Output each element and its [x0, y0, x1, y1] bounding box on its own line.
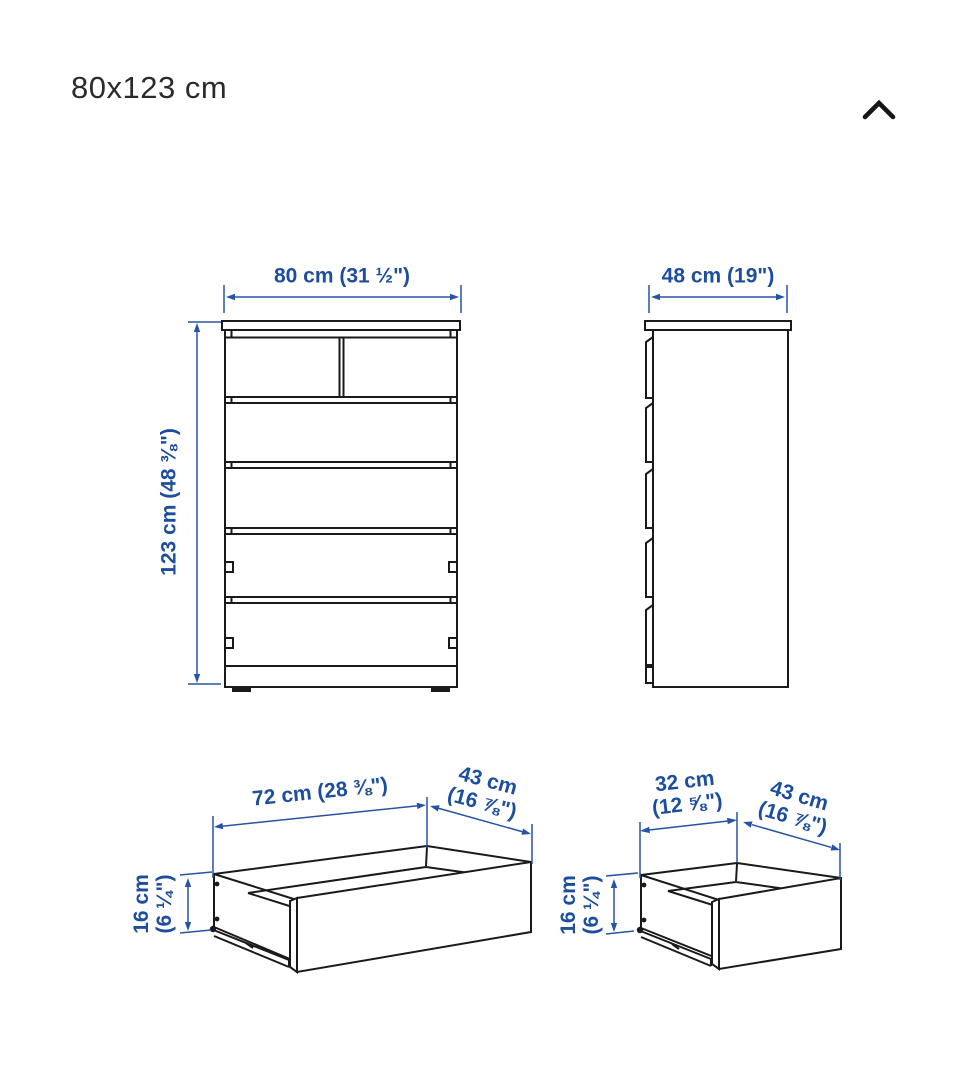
side-view-drawing — [645, 321, 791, 687]
dimension-line-large-drawer-height — [180, 872, 212, 933]
dimension-line-small-drawer-height — [606, 873, 638, 934]
large-drawer-height-label-line2: (6 ¼") — [153, 874, 176, 934]
small-drawer-height-label: 16 cm (6 ¼") — [557, 875, 603, 935]
large-drawer-height-label: 16 cm (6 ¼") — [130, 874, 176, 934]
product-dimensions-panel: 80x123 cm — [0, 0, 980, 1080]
large-drawer-height-label-line1: 16 cm — [130, 874, 153, 934]
small-drawer-height-label-line1: 16 cm — [557, 875, 580, 935]
dimension-line-side-depth — [649, 285, 787, 313]
small-drawer-height-label-line2: (6 ¼") — [580, 875, 603, 935]
front-view-drawing — [222, 321, 460, 692]
dimension-line-front-width — [224, 285, 461, 313]
front-height-label: 123 cm (48 ⅜") — [158, 428, 181, 576]
front-width-label: 80 cm (31 ½") — [274, 265, 410, 288]
small-drawer-drawing — [637, 863, 841, 969]
large-drawer-drawing — [210, 846, 531, 972]
dimension-line-large-drawer-width — [213, 797, 427, 878]
side-depth-label: 48 cm (19") — [662, 265, 775, 288]
dimension-line-front-height — [188, 322, 221, 684]
small-drawer-width-label: 32 cm (12 ⅝") — [648, 766, 723, 820]
